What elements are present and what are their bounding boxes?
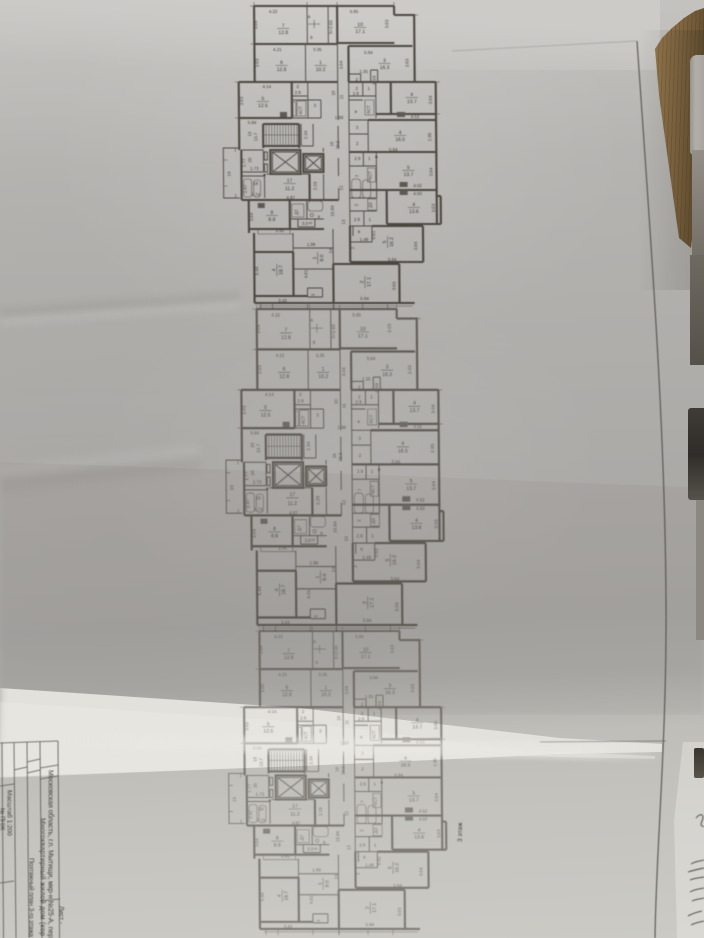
svg-text:-6СТ: -6СТ bbox=[367, 171, 372, 181]
svg-text:Поэтажный план 3-го этажа: Поэтажный план 3-го этажа bbox=[28, 858, 36, 937]
svg-text:5.64: 5.64 bbox=[364, 50, 373, 55]
svg-text:3.04: 3.04 bbox=[249, 212, 254, 221]
svg-text:4: 4 bbox=[399, 130, 402, 136]
svg-text:в: в bbox=[355, 109, 358, 114]
svg-text:12.5: 12.5 bbox=[258, 103, 268, 109]
svg-text:4: 4 bbox=[410, 92, 413, 98]
svg-text:4.22: 4.22 bbox=[269, 9, 278, 14]
svg-text:№ ПНЖ: № ПНЖ bbox=[0, 808, 6, 831]
svg-text:2.34: 2.34 bbox=[303, 130, 308, 139]
svg-text:4: 4 bbox=[271, 268, 277, 271]
svg-text:2: 2 bbox=[296, 84, 299, 89]
svg-text:1: 1 bbox=[319, 60, 322, 66]
svg-text:7: 7 bbox=[354, 174, 359, 177]
svg-text:8: 8 bbox=[270, 210, 273, 216]
svg-text:10.2: 10.2 bbox=[316, 67, 326, 73]
svg-text:4.14: 4.14 bbox=[262, 84, 271, 89]
svg-text:4: 4 bbox=[412, 202, 415, 208]
svg-text:15: 15 bbox=[247, 131, 252, 136]
svg-text:2.9: 2.9 bbox=[295, 90, 302, 95]
svg-text:13.6: 13.6 bbox=[409, 209, 419, 215]
svg-text:Масштаб 1:200: Масштаб 1:200 bbox=[6, 790, 14, 836]
svg-text:5.65: 5.65 bbox=[350, 9, 359, 14]
svg-text:5.64: 5.64 bbox=[389, 147, 398, 152]
svg-text:4.52: 4.52 bbox=[413, 183, 422, 188]
svg-text:5: 5 bbox=[382, 240, 388, 243]
svg-text:16.5: 16.5 bbox=[395, 137, 405, 143]
svg-text:8.8: 8.8 bbox=[268, 217, 275, 223]
svg-text:12.8: 12.8 bbox=[277, 67, 287, 73]
svg-text:5: 5 bbox=[261, 96, 264, 102]
svg-text:16.3: 16.3 bbox=[380, 65, 390, 71]
svg-text:13.7: 13.7 bbox=[407, 99, 417, 105]
svg-text:3: 3 bbox=[314, 103, 317, 108]
svg-text:2.95: 2.95 bbox=[427, 132, 432, 141]
svg-text:17.1: 17.1 bbox=[355, 29, 365, 35]
svg-text:h=2.65: h=2.65 bbox=[328, 20, 333, 34]
svg-text:0.61: 0.61 bbox=[371, 230, 376, 239]
svg-text:3.03: 3.03 bbox=[384, 19, 389, 28]
svg-text:3: 3 bbox=[356, 125, 359, 130]
svg-text:3.04: 3.04 bbox=[253, 20, 258, 29]
svg-text:5.64: 5.64 bbox=[388, 257, 397, 262]
svg-text:3.04: 3.04 bbox=[339, 60, 344, 69]
svg-text:1.74: 1.74 bbox=[251, 192, 260, 197]
svg-text:18: 18 bbox=[253, 181, 258, 186]
svg-text:9: 9 bbox=[310, 35, 313, 40]
svg-text:1: 1 bbox=[369, 217, 372, 222]
svg-text:2.9: 2.9 bbox=[354, 217, 361, 222]
svg-text:2.9: 2.9 bbox=[353, 91, 360, 96]
svg-text:1.99: 1.99 bbox=[307, 242, 316, 247]
svg-text:-5СТ: -5СТ bbox=[366, 105, 371, 115]
svg-text:8.0: 8.0 bbox=[319, 254, 325, 261]
svg-text:16.2: 16.2 bbox=[389, 237, 395, 247]
svg-text:2.9: 2.9 bbox=[354, 156, 361, 161]
svg-text:13.7: 13.7 bbox=[253, 132, 258, 141]
svg-text:2.91: 2.91 bbox=[276, 228, 285, 233]
svg-text:3.03: 3.03 bbox=[255, 58, 260, 67]
svg-text:5.84: 5.84 bbox=[248, 120, 257, 125]
svg-text:Многоквартирный жилой дом (к: Многоквартирный жилой дом (кор bbox=[39, 818, 47, 936]
svg-text:12.8: 12.8 bbox=[278, 30, 288, 36]
svg-text:4.21: 4.21 bbox=[273, 47, 282, 52]
svg-text:3.04: 3.04 bbox=[428, 167, 433, 176]
svg-text:1: 1 bbox=[368, 156, 371, 161]
svg-text:17.1: 17.1 bbox=[366, 277, 372, 287]
svg-text:1: 1 bbox=[312, 256, 318, 259]
svg-text:1.49: 1.49 bbox=[360, 237, 369, 242]
svg-text:5: 5 bbox=[407, 165, 410, 171]
svg-text:в: в bbox=[318, 214, 321, 219]
svg-text:12: 12 bbox=[339, 185, 344, 190]
svg-text:5.44: 5.44 bbox=[254, 266, 259, 275]
svg-text:4.01: 4.01 bbox=[303, 269, 308, 278]
svg-text:5: 5 bbox=[308, 221, 313, 224]
svg-text:3: 3 bbox=[311, 293, 316, 296]
svg-text:Лист -: Лист - bbox=[58, 906, 65, 924]
svg-text:1.77: 1.77 bbox=[241, 158, 246, 167]
svg-text:3.03: 3.03 bbox=[405, 58, 410, 67]
svg-text:13.7: 13.7 bbox=[404, 172, 414, 178]
svg-text:2: 2 bbox=[354, 203, 359, 206]
svg-text:15.84: 15.84 bbox=[330, 205, 335, 217]
svg-text:7: 7 bbox=[282, 23, 285, 29]
svg-text:4.87: 4.87 bbox=[286, 195, 295, 200]
svg-text:11.2: 11.2 bbox=[285, 186, 295, 192]
svg-text:3.35: 3.35 bbox=[313, 47, 322, 52]
svg-text:3.03: 3.03 bbox=[391, 281, 396, 290]
svg-text:Д7: Д7 bbox=[294, 209, 299, 215]
svg-text:11: 11 bbox=[339, 94, 344, 99]
svg-text:29.5: 29.5 bbox=[335, 140, 340, 149]
svg-text:3.04: 3.04 bbox=[413, 241, 418, 250]
svg-text:1: 1 bbox=[368, 86, 371, 91]
svg-text:1.73: 1.73 bbox=[250, 166, 259, 171]
svg-text:20: 20 bbox=[247, 157, 252, 162]
svg-text:3: 3 bbox=[383, 58, 386, 64]
svg-text:16: 16 bbox=[329, 141, 334, 146]
svg-text:2: 2 bbox=[359, 280, 365, 283]
svg-text:6: 6 bbox=[280, 60, 283, 66]
svg-text:10: 10 bbox=[357, 22, 363, 28]
svg-text:18.7: 18.7 bbox=[278, 265, 284, 275]
svg-text:3.03: 3.03 bbox=[239, 96, 244, 105]
svg-text:17: 17 bbox=[287, 178, 293, 184]
svg-text:4.52: 4.52 bbox=[411, 114, 420, 119]
svg-text:в: в bbox=[358, 229, 361, 234]
svg-text:10: 10 bbox=[331, 90, 336, 95]
svg-text:5.64: 5.64 bbox=[360, 296, 369, 301]
svg-text:Московская область, г.п. Мытищ: Московская область, г.п. Мытищи, мкр-н №… bbox=[47, 770, 55, 938]
svg-text:19: 19 bbox=[226, 171, 231, 176]
svg-text:14: 14 bbox=[328, 248, 333, 253]
svg-text:3.03: 3.03 bbox=[431, 203, 436, 212]
svg-text:2.29: 2.29 bbox=[313, 181, 318, 190]
svg-text:в: в bbox=[308, 14, 311, 19]
svg-text:-4СТ: -4СТ bbox=[298, 106, 303, 116]
svg-text:1.35: 1.35 bbox=[359, 69, 368, 74]
svg-text:4.50: 4.50 bbox=[413, 191, 422, 196]
svg-text:3 этаж: 3 этаж bbox=[457, 822, 464, 842]
svg-text:13: 13 bbox=[341, 219, 346, 224]
svg-text:2: 2 bbox=[356, 141, 359, 146]
svg-text:Д3: Д3 bbox=[368, 202, 373, 208]
svg-text:1.88: 1.88 bbox=[335, 115, 344, 120]
svg-text:3.04: 3.04 bbox=[428, 95, 433, 104]
